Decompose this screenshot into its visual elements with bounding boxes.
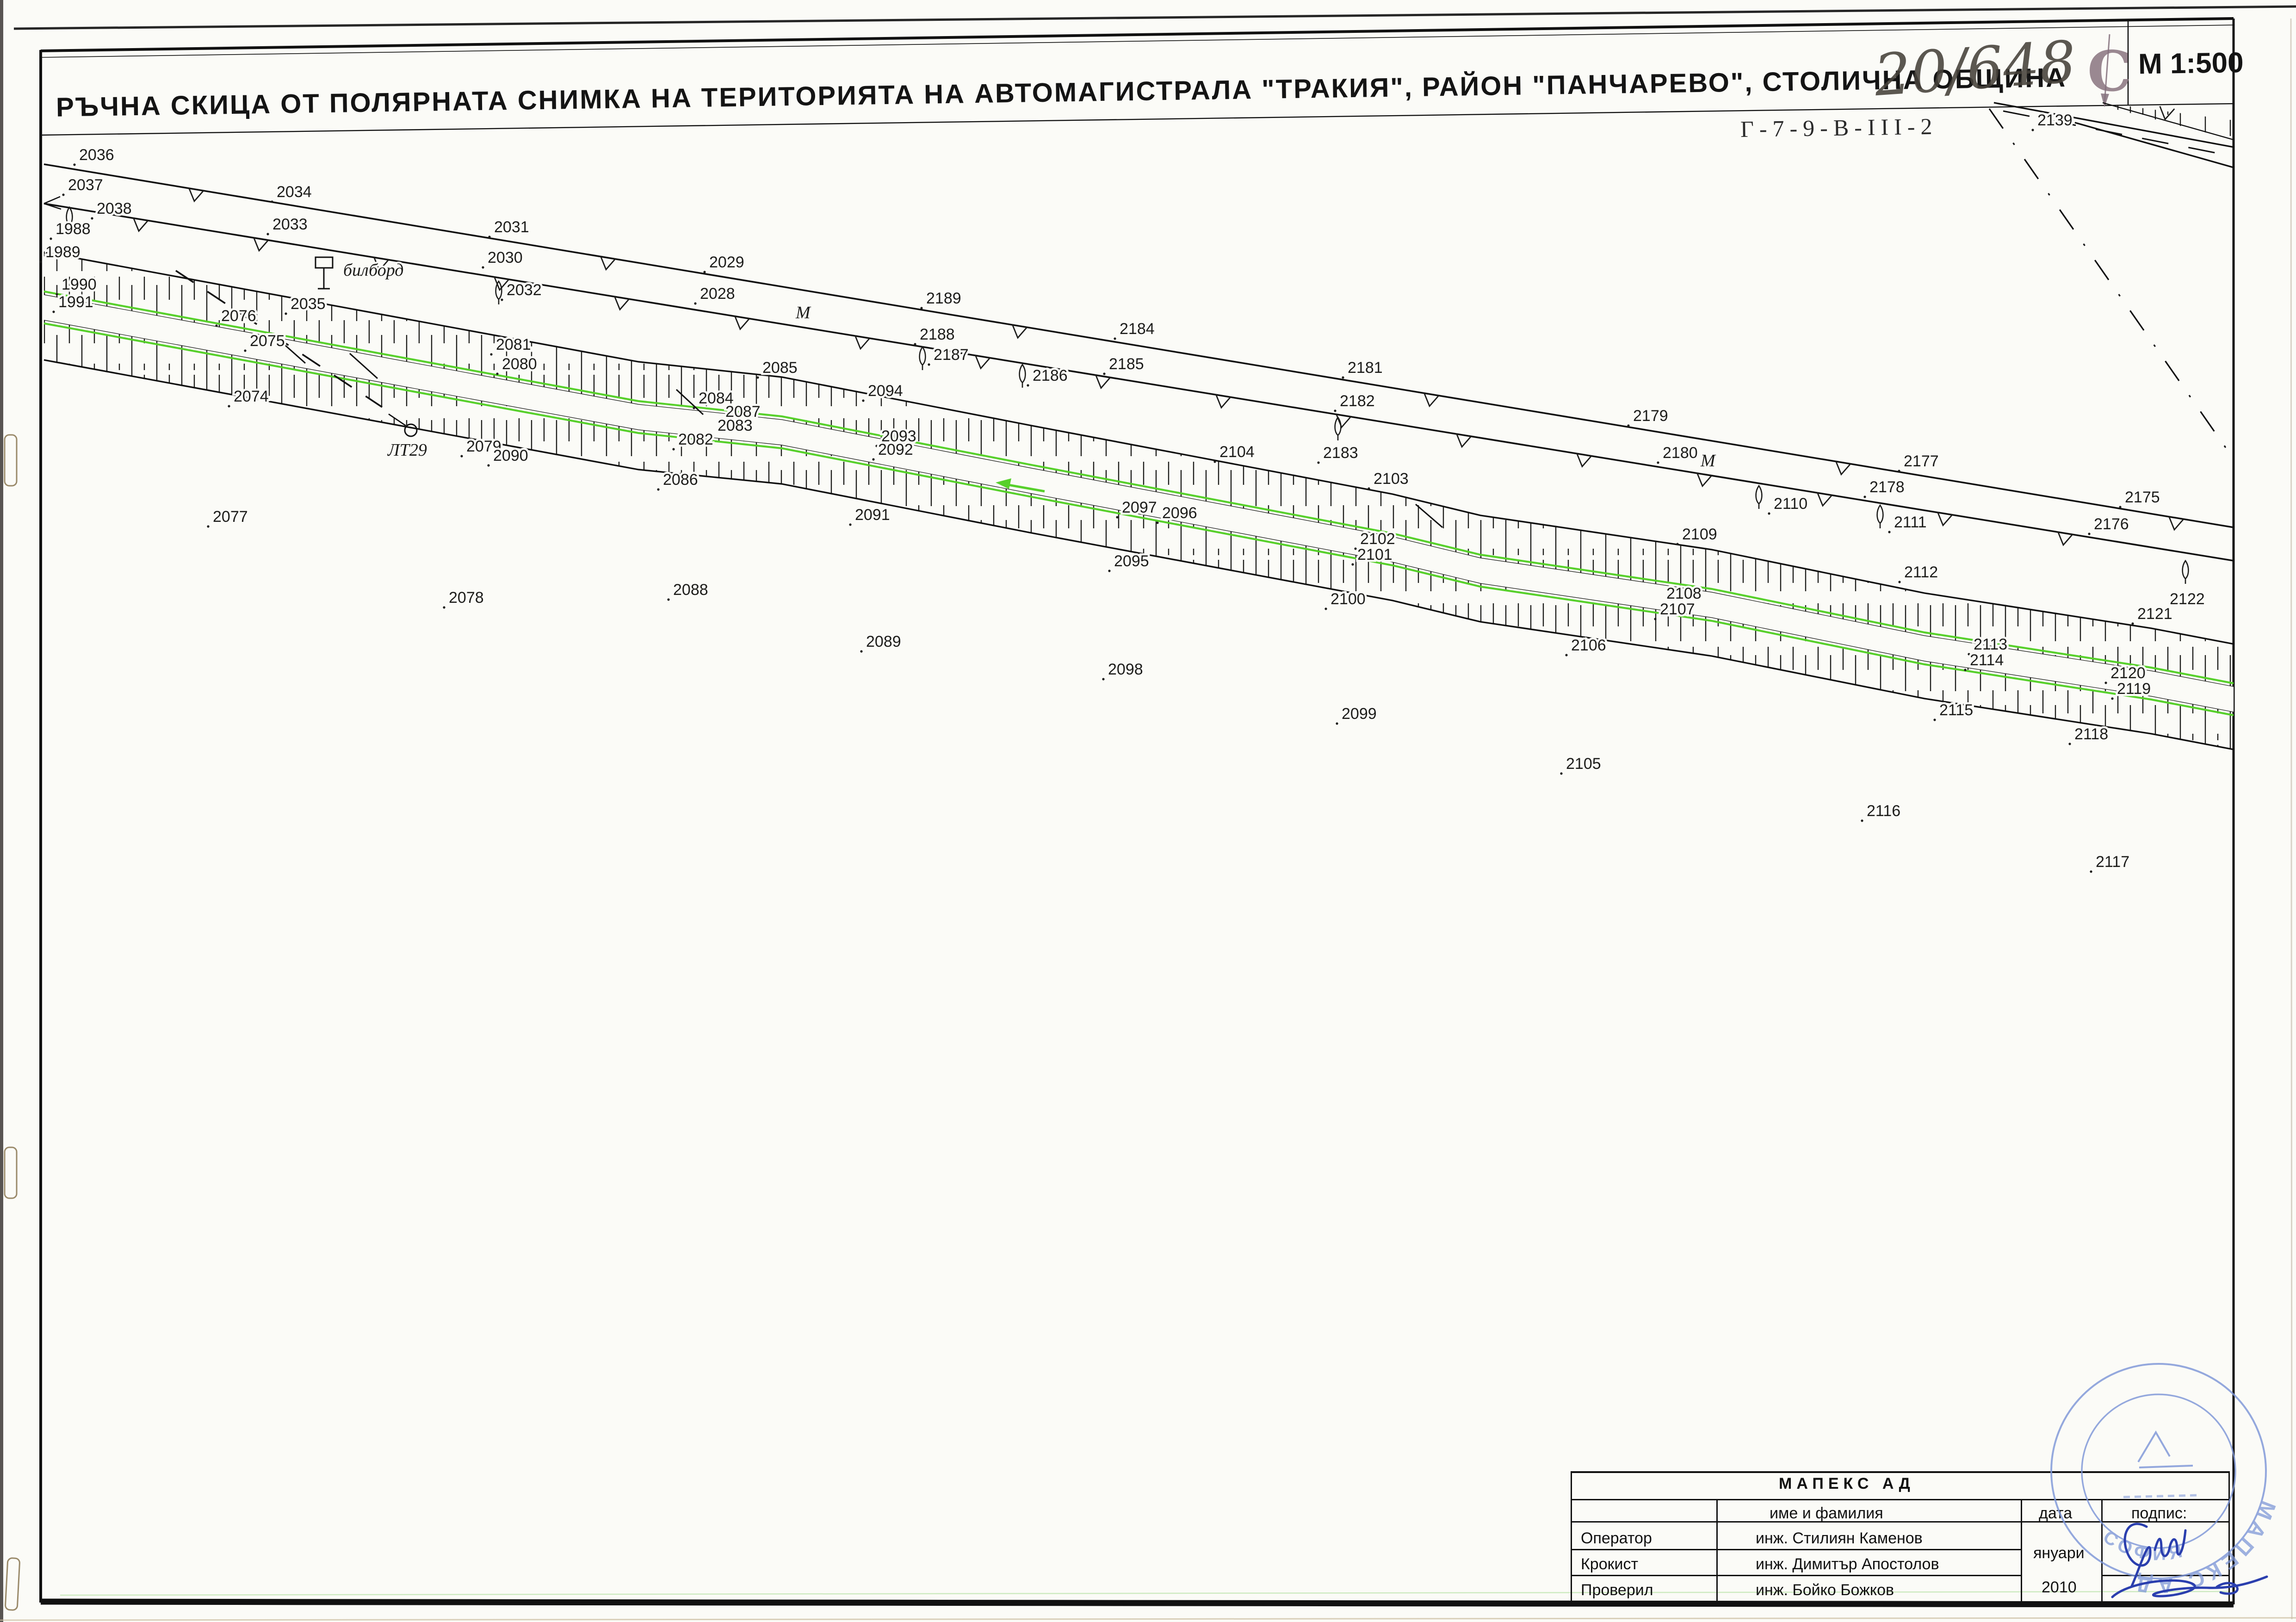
stamp-and-signatures: МАПЕКС АД СОФИЯ (0, 0, 2296, 1622)
scanned-survey-sheet: РЪЧНА СКИЦА ОТ ПОЛЯРНАТА СНИМКА НА ТЕРИТ… (0, 0, 2296, 1622)
stamp-logo (2123, 1432, 2197, 1497)
round-stamp: МАПЕКС АД СОФИЯ (2051, 1364, 2281, 1598)
